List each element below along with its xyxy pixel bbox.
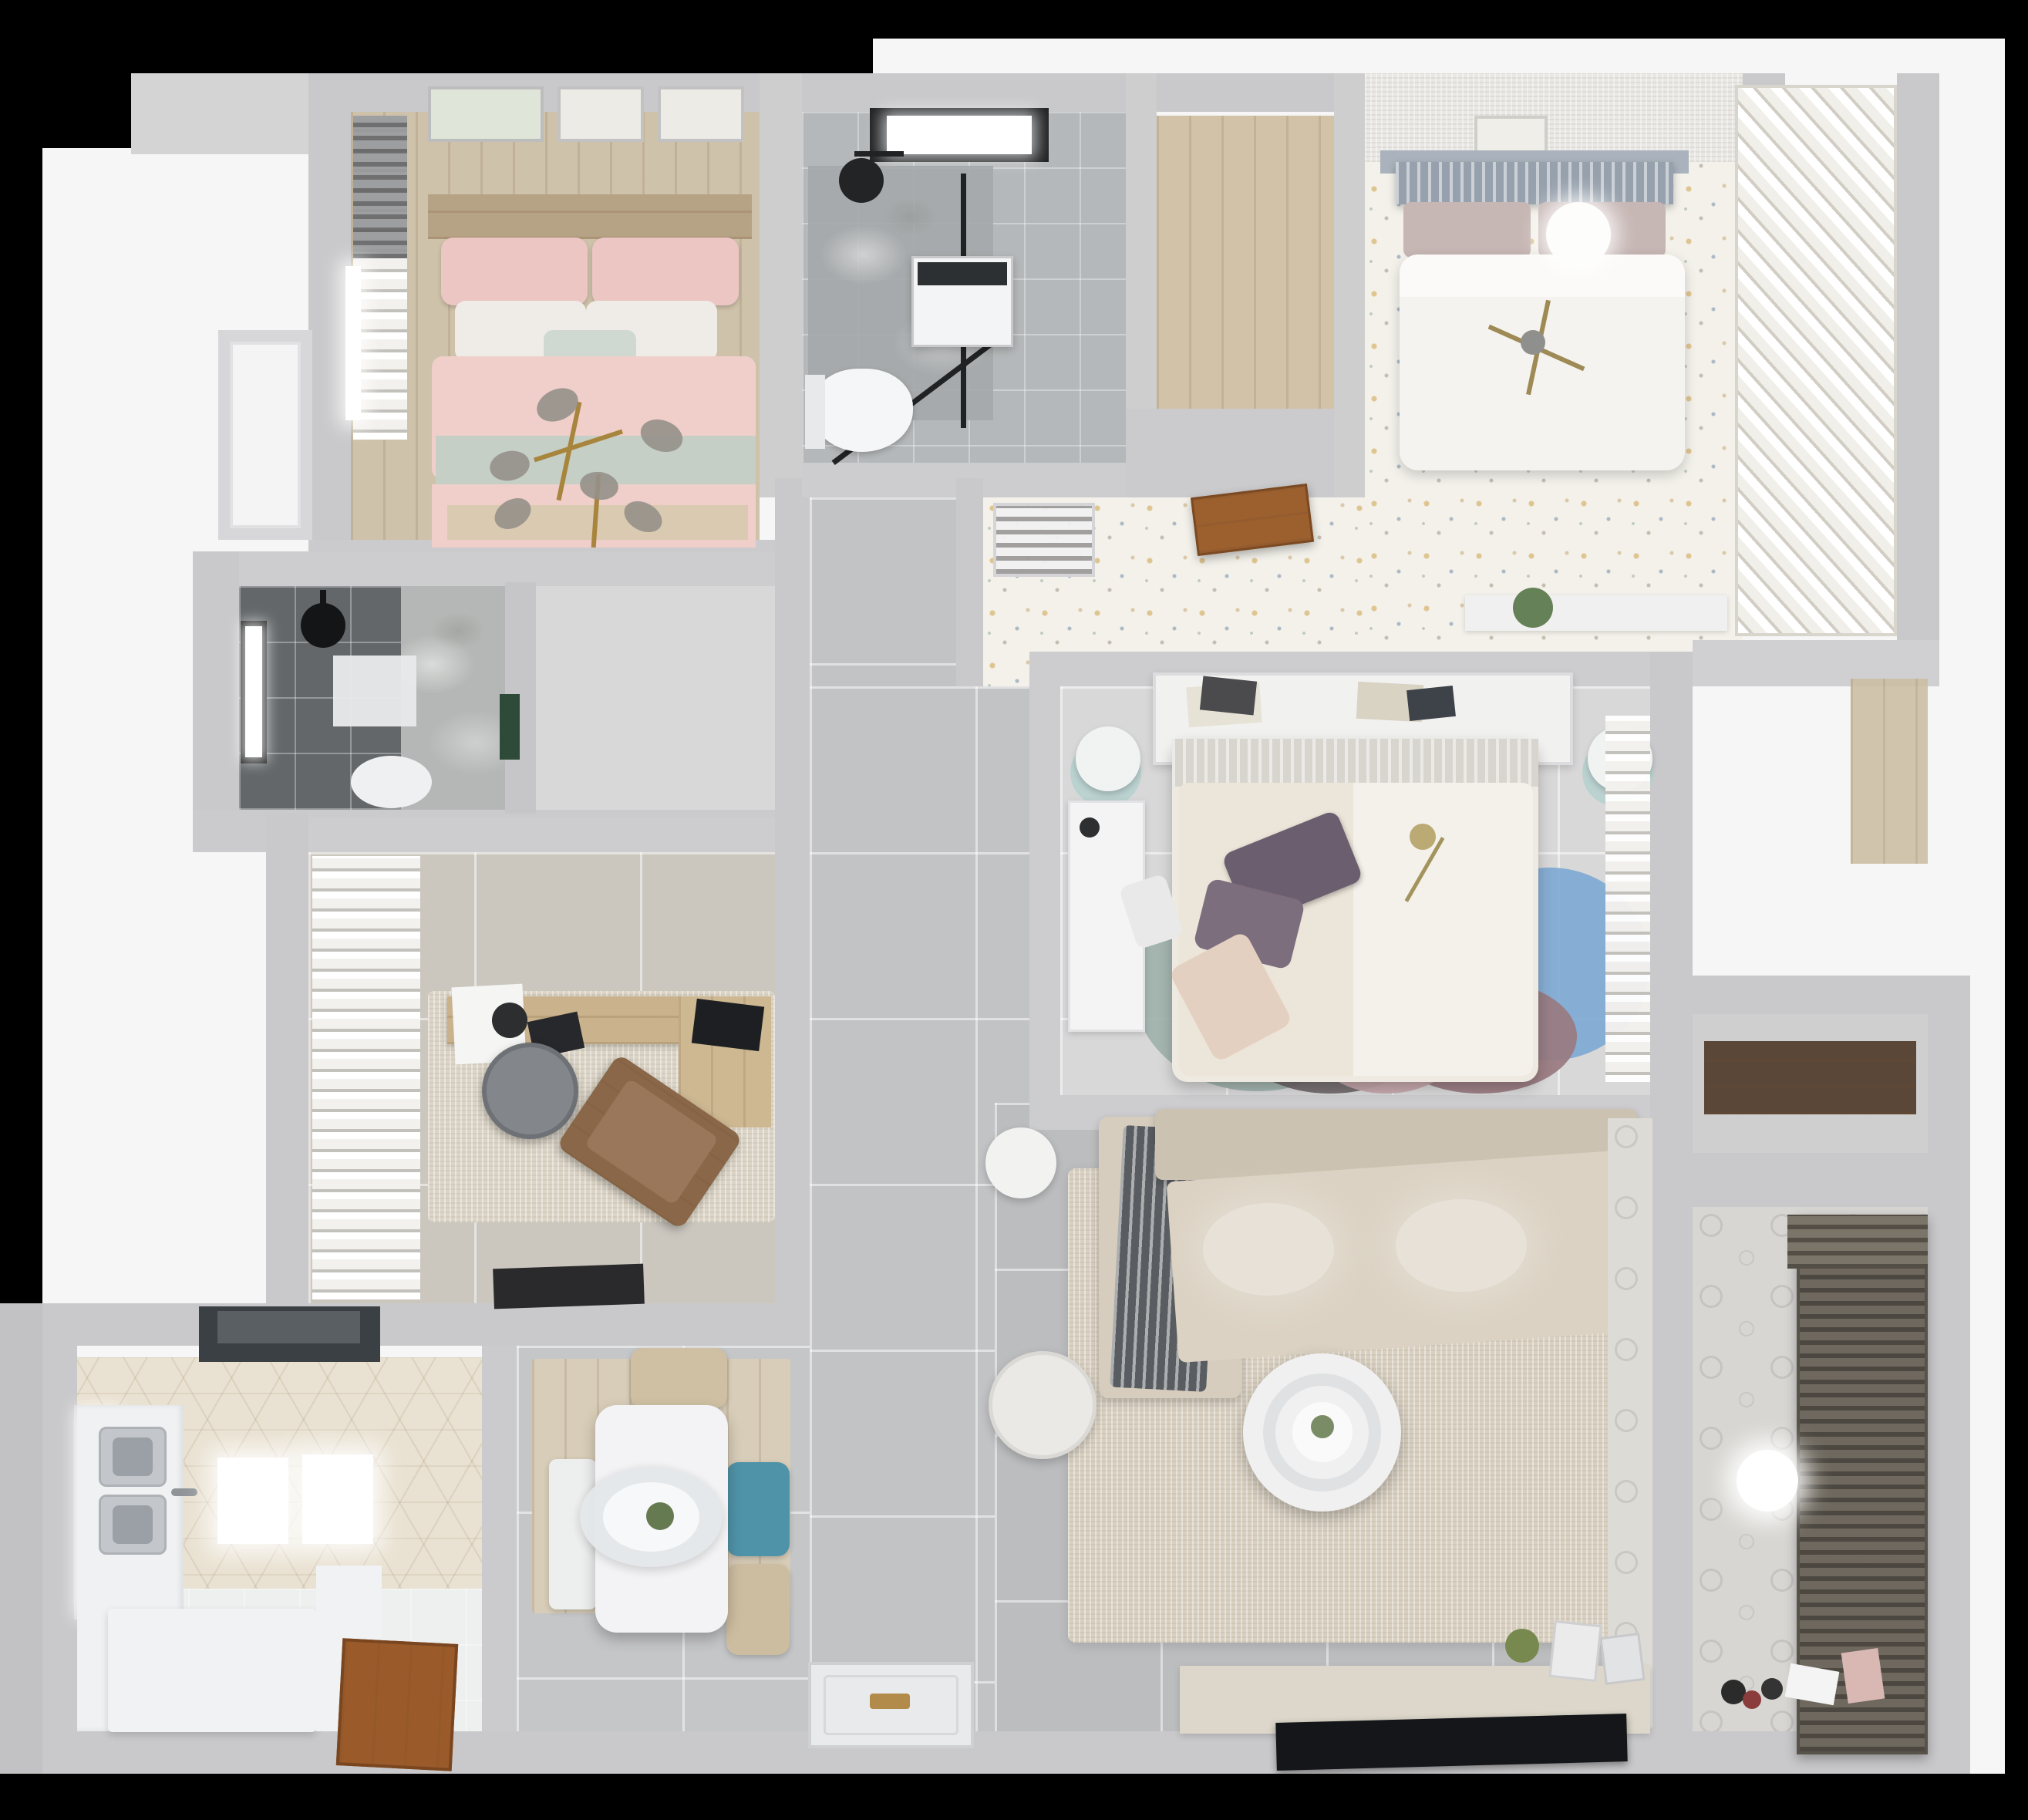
bedroom2-ceiling-lamp: [1546, 202, 1611, 267]
hall-plant: [1513, 588, 1553, 628]
study-curtain: [312, 856, 420, 1299]
study-doormat: [493, 1264, 645, 1309]
hall-ledge: [1465, 595, 1727, 631]
darkbath-toilet: [351, 756, 432, 808]
living-pouf: [989, 1351, 1097, 1459]
kitchen-sink-2-basin: [113, 1505, 153, 1544]
outside-wood-sliver: [1851, 679, 1928, 864]
bedroom3-bed-head-band: [1172, 739, 1538, 787]
bedroom2-pillow-left: [1403, 202, 1531, 258]
darkbath-green-accent: [500, 694, 520, 760]
hall-stool: [985, 1127, 1056, 1198]
bedroom1-art-frame-green: [428, 86, 544, 142]
wall-darkbath-top: [239, 551, 779, 586]
bedroom3-curtain-right: [1605, 716, 1650, 1082]
balcony-toy-2: [1743, 1690, 1761, 1709]
bedroom3-nightstand-left: [1076, 726, 1140, 791]
bath1-shower-arm: [854, 151, 904, 157]
study-laptop: [692, 999, 764, 1051]
outer-wall-left-kitchen: [42, 1342, 77, 1774]
wall-bedroom1-bath1: [760, 73, 802, 497]
bedroom1-pillow-pink-right: [592, 238, 739, 305]
wall-halltop-left: [956, 478, 983, 686]
bedroom3-duvet-white-fold: [1353, 783, 1533, 1076]
bedroom2-headboard: [1396, 162, 1673, 204]
wall-study-top: [308, 817, 810, 852]
wall-living-right: [1650, 652, 1693, 1774]
bedroom1-art-frame-2: [558, 86, 644, 142]
living-light-glow-2: [1396, 1199, 1527, 1292]
kitchen-sink-1-basin: [113, 1437, 153, 1476]
darkbath-window-glow: [245, 626, 262, 757]
closet-top-floor: [1157, 116, 1334, 409]
hallway-floor-upper: [810, 497, 956, 686]
kitchen-ceiling-light-2: [302, 1454, 373, 1544]
bedroom2-gold-knot: [1521, 330, 1545, 355]
wall-closet-bottom: [1126, 409, 1365, 497]
bath1-window-glow: [887, 116, 1032, 154]
outer-wall-left-study: [266, 814, 308, 1342]
outer-wall-balcony-right: [1928, 976, 1970, 1774]
bedroom2-duvet-fold: [1400, 254, 1685, 297]
outer-wall-bedroom2-right: [1897, 73, 1939, 686]
bedroom1-headboard: [428, 194, 752, 239]
living-light-glow-1: [1203, 1203, 1334, 1296]
nook-wardrobe: [1704, 1041, 1916, 1114]
kitchen-hood: [217, 1311, 360, 1343]
bedroom2-closet-shelves: [1735, 85, 1897, 636]
dining-chair-top: [631, 1348, 727, 1408]
kitchen-door-wood: [336, 1638, 458, 1771]
living-console-plant: [1505, 1629, 1539, 1663]
darkbath-shower-arm: [320, 590, 326, 621]
bath1-toilet-tank: [805, 375, 825, 449]
wall-bedroom3-left: [1029, 686, 1060, 1095]
wall-closet-bedroom2: [1334, 73, 1365, 497]
bedroom2-ceiling-band: [1365, 73, 1743, 162]
balcony-toy-3: [1761, 1678, 1783, 1700]
kitchen-counter-bottom: [108, 1609, 316, 1732]
study-chair: [482, 1043, 578, 1139]
bedroom1-art-frame-3: [658, 86, 744, 142]
balcony-light: [1737, 1450, 1798, 1512]
bath1-shower-head: [839, 158, 884, 203]
balcony-radiator-top-cap: [1787, 1215, 1928, 1269]
entry-door-handles: [870, 1694, 910, 1709]
kitchen-ceiling-light-1: [217, 1458, 288, 1544]
kitchen-faucet: [171, 1488, 197, 1496]
living-console-frame-1: [1548, 1620, 1602, 1682]
wall-kitchen-top: [42, 1303, 810, 1346]
bedroom3-book-4: [1406, 686, 1456, 721]
hall-ac-vent: [993, 503, 1095, 577]
corridor2-floor: [536, 586, 775, 810]
outer-wall-left-upper: [308, 73, 351, 555]
bath1-toilet-bowl: [811, 369, 913, 452]
living-console-frame-2: [1599, 1633, 1645, 1685]
bath1-washer-panel: [918, 262, 1007, 285]
living-tv: [1275, 1714, 1627, 1771]
wall-study-right: [775, 478, 810, 1342]
bedroom1-window-glow: [345, 266, 361, 420]
outer-wall-top-wedge: [131, 73, 316, 154]
floorplan-render: [0, 0, 2028, 1820]
wall-kitchen-dining: [482, 1346, 517, 1774]
study-speaker: [492, 1003, 527, 1038]
balcony-bag: [1841, 1648, 1885, 1704]
living-coffee-plant: [1311, 1415, 1334, 1438]
bedroom3-desk-lamp: [1080, 817, 1100, 838]
bedroom1-pillow-pink-left: [441, 238, 588, 305]
bedroom1-roman-shade: [353, 116, 407, 258]
nook-top-wall: [1650, 976, 1935, 1014]
bedroom3-gold-knot: [1410, 824, 1436, 850]
dining-chair-teal: [726, 1462, 790, 1556]
left-door-leaf: [230, 342, 301, 528]
outside-gray-left: [0, 1303, 45, 1774]
outer-wall-left-mid: [193, 551, 239, 817]
page-background: { "meta": { "description": "Top-down 3D …: [0, 0, 2028, 1820]
nook-bottom-wall: [1650, 1153, 1935, 1207]
darkbath-mat: [333, 656, 416, 726]
bedroom3-book-2: [1200, 676, 1257, 715]
dining-chair-beige: [726, 1564, 790, 1655]
dining-pendant-plant: [646, 1502, 674, 1530]
